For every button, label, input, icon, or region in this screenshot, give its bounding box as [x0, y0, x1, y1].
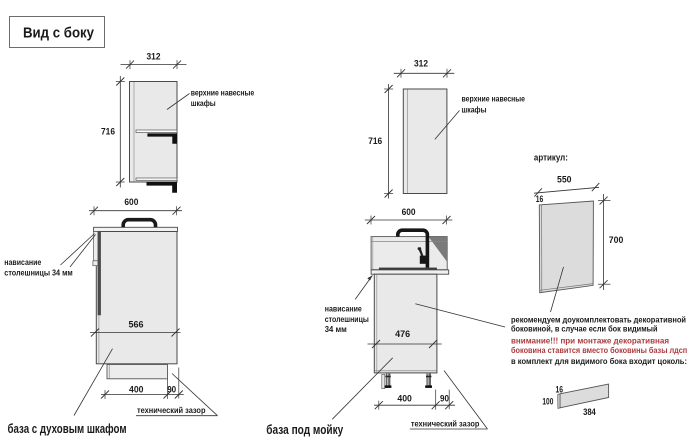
svg-text:600: 600	[124, 197, 138, 207]
svg-text:боковина ставится вместо боков: боковина ставится вместо боковины базы л…	[511, 345, 687, 355]
svg-text:шкафы: шкафы	[462, 105, 487, 114]
svg-text:верхние навесные: верхние навесные	[462, 95, 526, 104]
svg-text:566: 566	[129, 320, 144, 330]
svg-text:16: 16	[556, 384, 564, 394]
svg-text:боковиной, в случае если бок в: боковиной, в случае если бок видимый	[511, 324, 658, 334]
svg-text:312: 312	[147, 52, 161, 62]
svg-text:артикул:: артикул:	[534, 152, 568, 162]
svg-text:столешницы: столешницы	[325, 314, 369, 324]
svg-text:нависание: нависание	[4, 257, 41, 267]
svg-text:400: 400	[397, 394, 412, 404]
svg-text:312: 312	[414, 59, 428, 69]
svg-text:база с духовым шкафом: база с духовым шкафом	[8, 422, 127, 436]
svg-text:716: 716	[368, 136, 382, 146]
svg-text:90: 90	[440, 394, 449, 404]
svg-text:34 мм: 34 мм	[325, 324, 347, 334]
svg-text:384: 384	[583, 407, 596, 417]
svg-text:90: 90	[167, 384, 176, 394]
svg-text:столешницы 34 мм: столешницы 34 мм	[4, 268, 73, 278]
svg-text:16: 16	[536, 194, 544, 204]
svg-text:100: 100	[542, 397, 553, 407]
svg-text:база под мойку: база под мойку	[266, 423, 343, 437]
svg-text:технический зазор: технический зазор	[411, 418, 480, 428]
svg-text:верхние навесные: верхние навесные	[191, 89, 255, 98]
svg-text:шкафы: шкафы	[191, 99, 216, 108]
svg-text:476: 476	[395, 329, 410, 339]
svg-text:Вид с боку: Вид с боку	[23, 25, 95, 42]
svg-text:700: 700	[609, 235, 624, 245]
svg-text:в комплект для видимого бока в: в комплект для видимого бока входит цоко…	[511, 356, 687, 366]
svg-text:716: 716	[101, 127, 115, 137]
svg-text:технический зазор: технический зазор	[137, 405, 206, 415]
svg-text:внимание!!! при монтаже декора: внимание!!! при монтаже декоративная	[511, 335, 669, 345]
svg-text:600: 600	[402, 207, 416, 217]
svg-text:нависание: нависание	[325, 304, 362, 314]
svg-text:400: 400	[129, 384, 144, 394]
svg-text:550: 550	[557, 174, 572, 184]
